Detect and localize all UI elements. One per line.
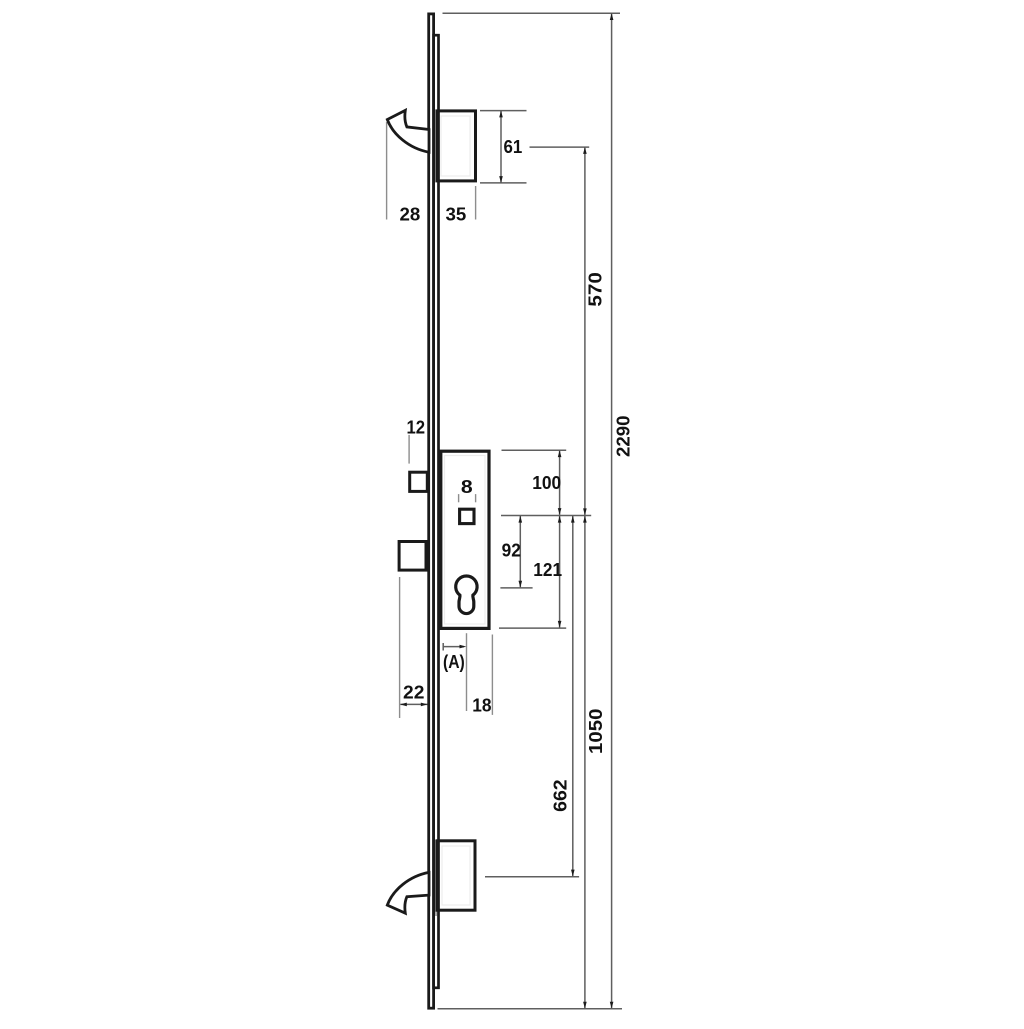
svg-text:662: 662 xyxy=(550,779,570,812)
svg-text:92: 92 xyxy=(502,540,521,560)
svg-text:12: 12 xyxy=(407,417,426,437)
svg-text:570: 570 xyxy=(585,272,605,307)
svg-text:35: 35 xyxy=(446,204,467,224)
svg-text:1050: 1050 xyxy=(586,708,606,754)
svg-text:22: 22 xyxy=(403,683,424,703)
svg-text:61: 61 xyxy=(504,137,523,157)
svg-text:100: 100 xyxy=(532,473,561,493)
svg-text:2290: 2290 xyxy=(613,416,633,458)
svg-text:18: 18 xyxy=(472,696,491,716)
svg-text:121: 121 xyxy=(533,560,562,580)
svg-text:8: 8 xyxy=(461,477,473,497)
svg-text:(A): (A) xyxy=(443,652,465,672)
svg-text:28: 28 xyxy=(400,204,421,224)
